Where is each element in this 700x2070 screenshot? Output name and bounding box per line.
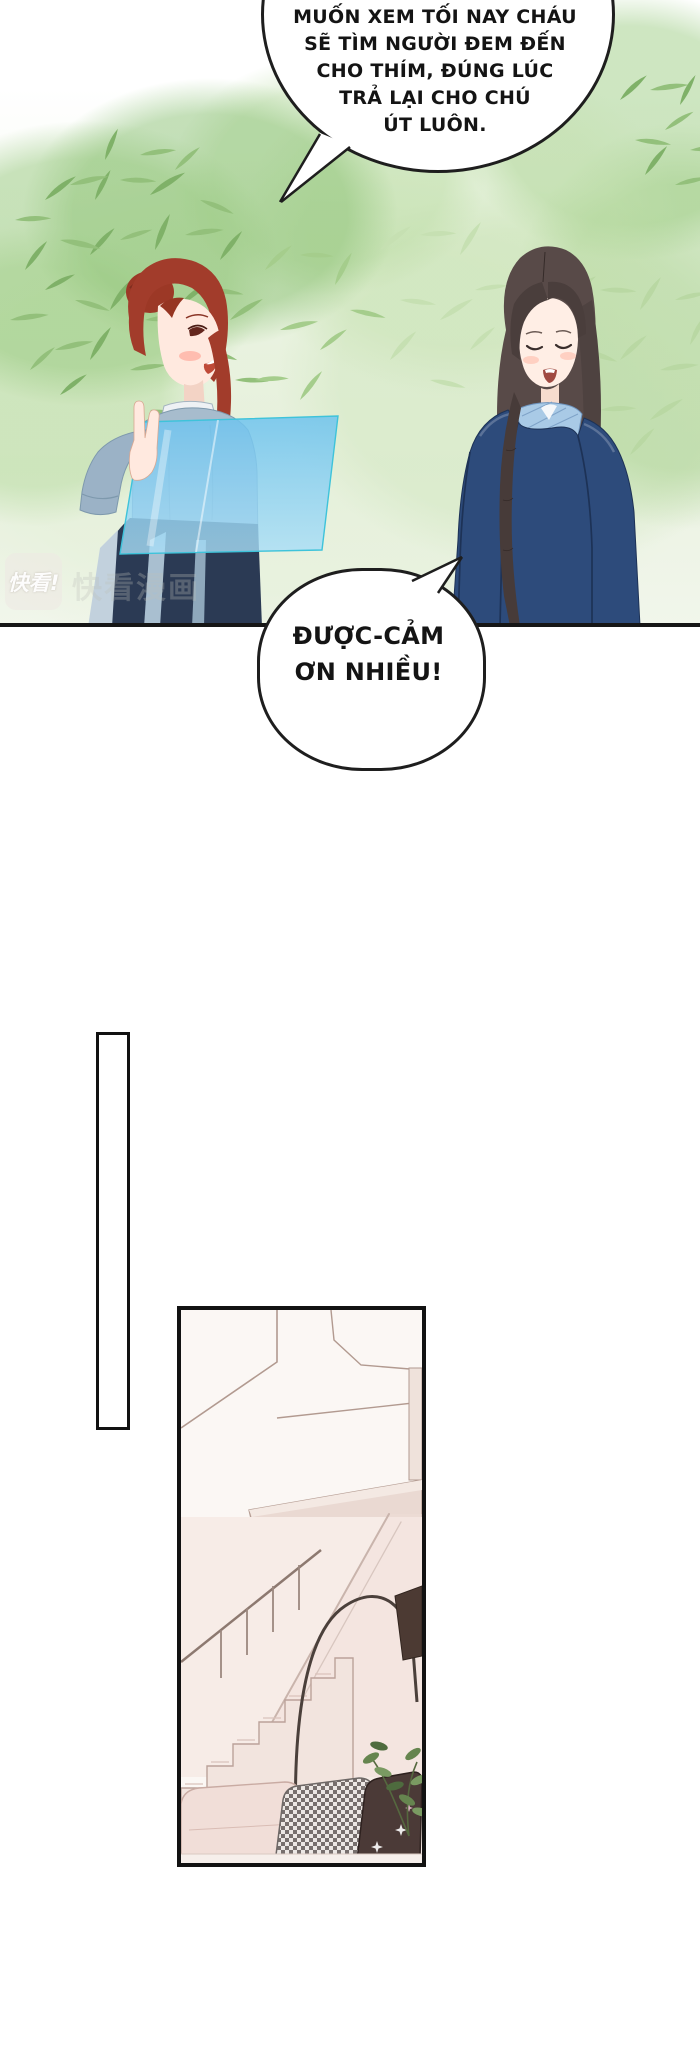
bubble-line: SẼ TÌM NGƯỜI ĐEM ĐẾN [261, 31, 609, 58]
comic-page: 快看! 快看漫画 MUỐN XEM TỐI NAY CHÁU SẼ TÌM NG… [0, 0, 700, 2070]
panel-interior-scene [177, 1306, 426, 1867]
bubble-line: CHO THÍM, ĐÚNG LÚC [261, 58, 609, 85]
sofa-seat [181, 1854, 422, 1863]
bubble-line: ÚT LUÔN. [261, 112, 609, 139]
interior-artwork [181, 1310, 422, 1863]
wall-column [409, 1368, 422, 1480]
bubble-line: MUỐN XEM TỐI NAY CHÁU [261, 4, 609, 31]
speech-bubble-main-text: MUỐN XEM TỐI NAY CHÁU SẼ TÌM NGƯỜI ĐEM Đ… [261, 4, 609, 139]
bubble-line: ƠN NHIỀU! [257, 654, 480, 690]
blank-vertical-strip [96, 1032, 130, 1430]
speech-bubble-reply-text: ĐƯỢC-CẢM ƠN NHIỀU! [257, 618, 480, 690]
bubble-line: TRẢ LẠI CHO CHÚ [261, 85, 609, 112]
bubble-line: ĐƯỢC-CẢM [257, 618, 480, 654]
